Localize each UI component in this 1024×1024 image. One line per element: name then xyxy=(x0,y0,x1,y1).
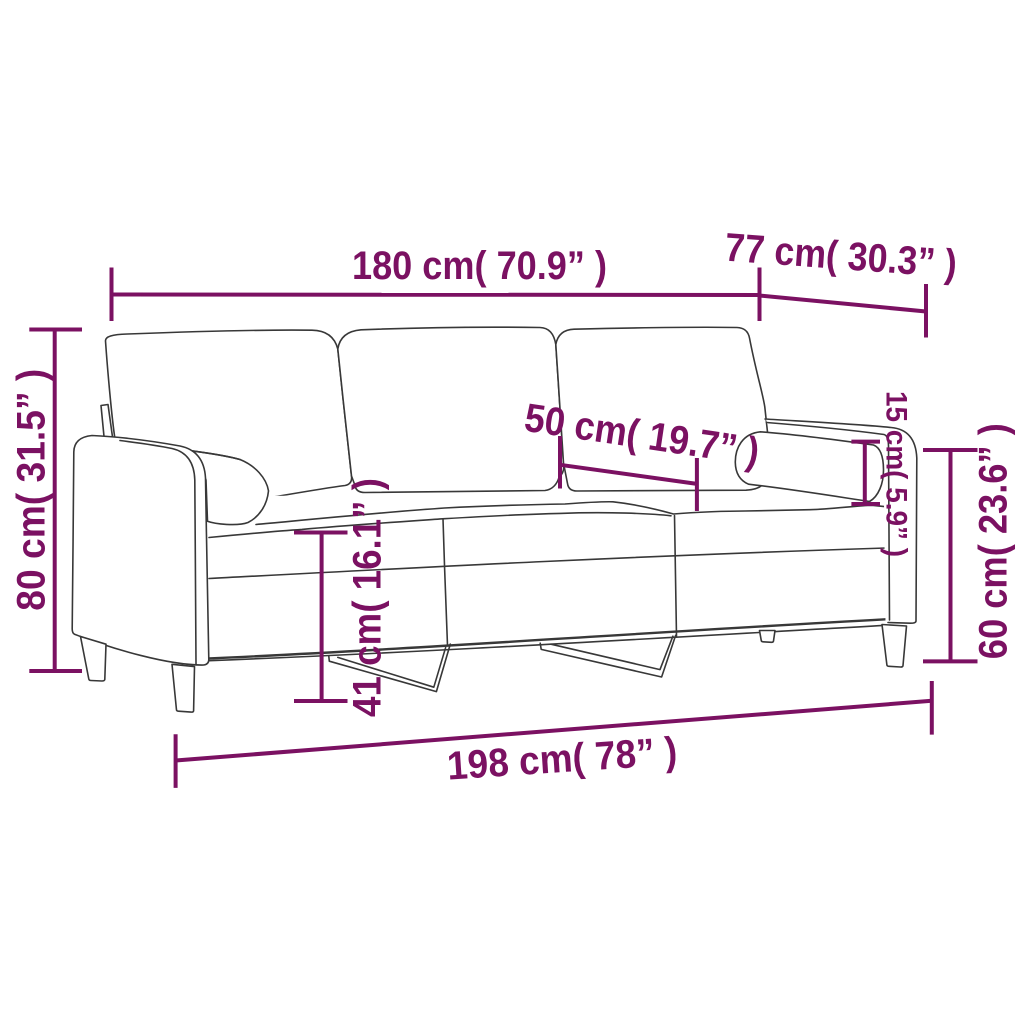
svg-text:15 cm( 5.9” ): 15 cm( 5.9” ) xyxy=(880,391,913,557)
svg-text:41 cm( 16.1” ): 41 cm( 16.1” ) xyxy=(346,478,390,717)
svg-text:180 cm( 70.9” ): 180 cm( 70.9” ) xyxy=(352,244,607,288)
svg-text:80 cm( 31.5” ): 80 cm( 31.5” ) xyxy=(10,369,54,611)
svg-text:60 cm( 23.6” ): 60 cm( 23.6” ) xyxy=(971,423,1015,659)
